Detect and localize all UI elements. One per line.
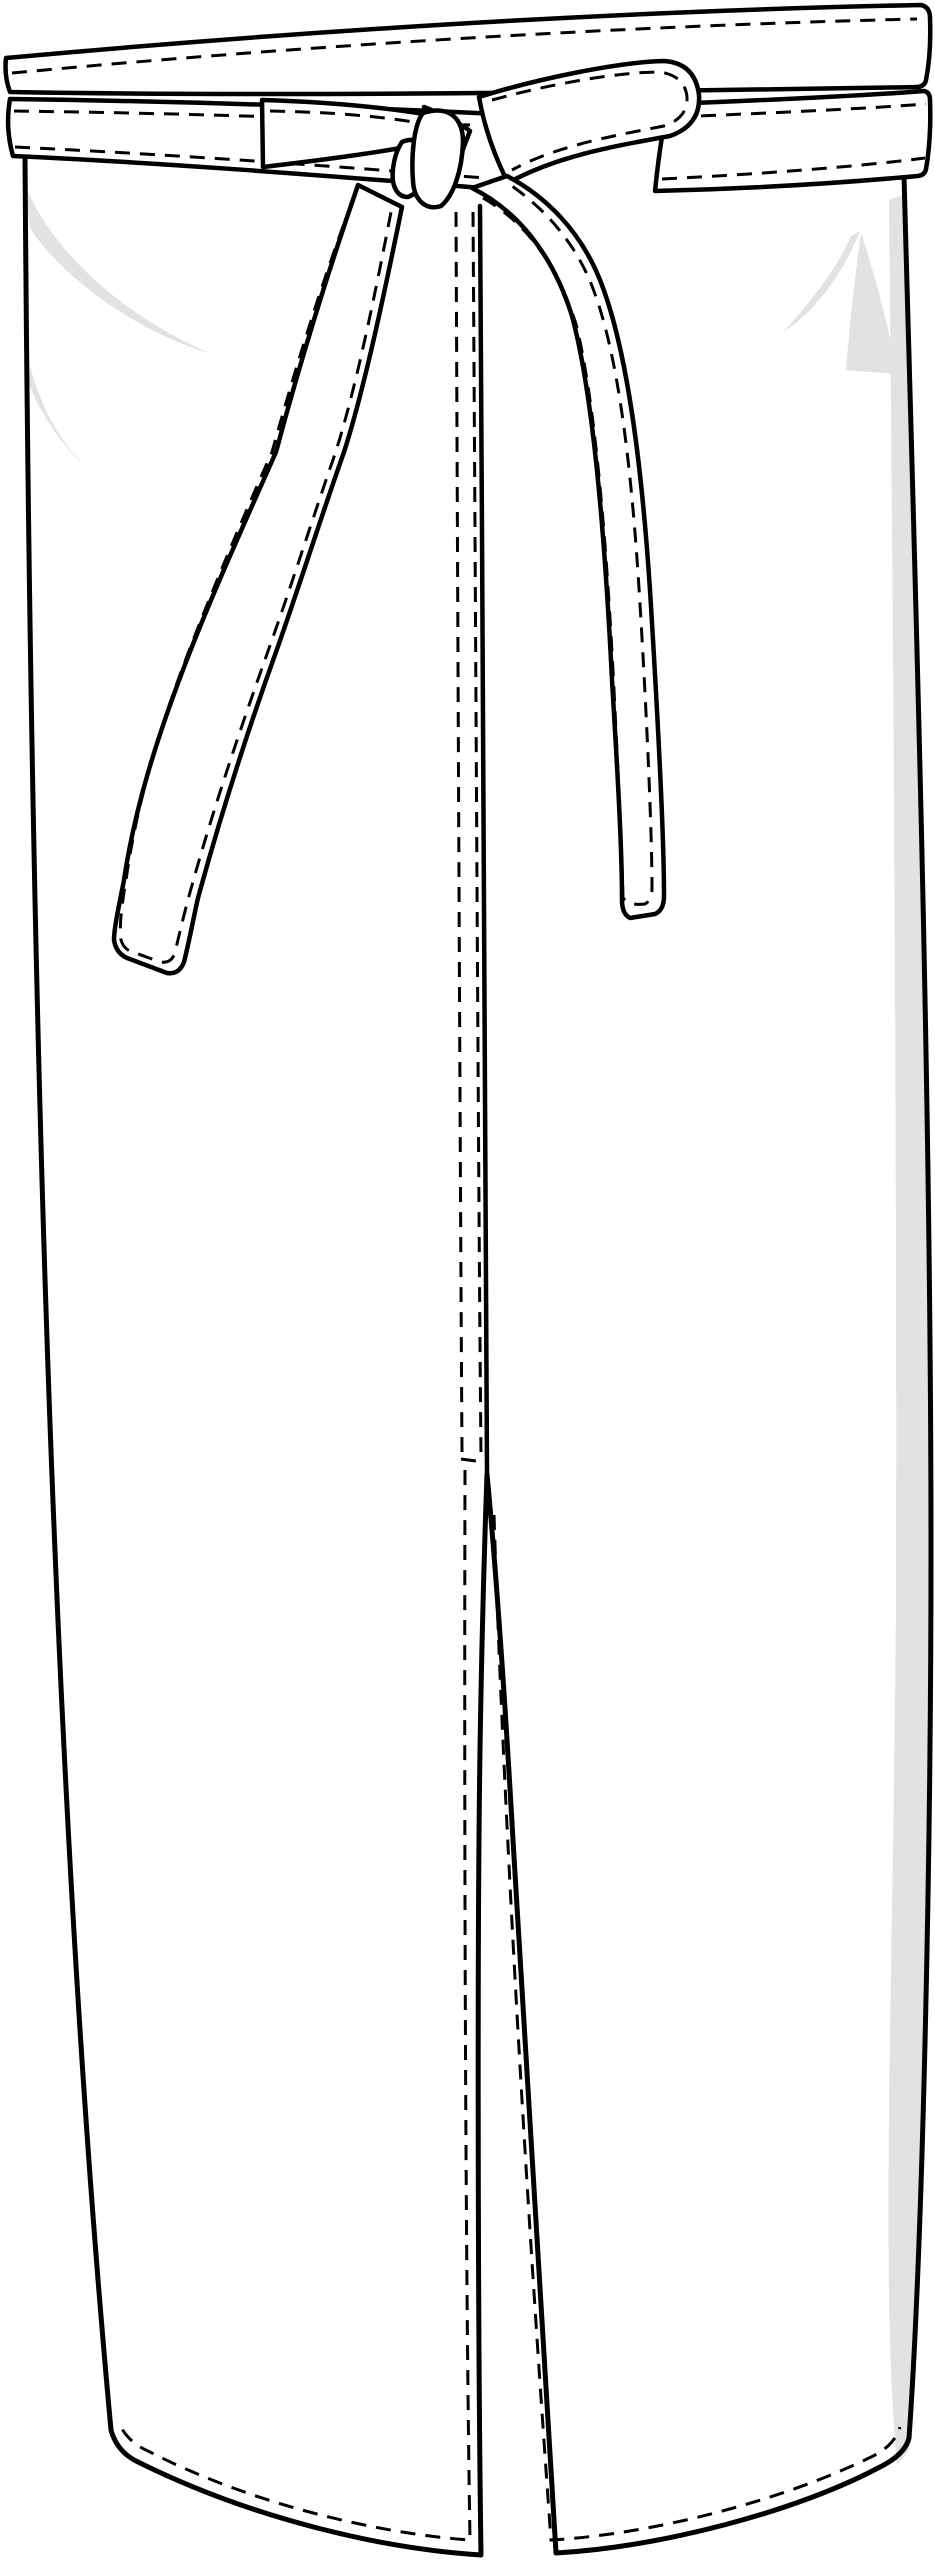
apron-technical-flat: Long bistro wrap apron with waist-tie bo…	[0, 0, 935, 2560]
top-band	[6, 5, 931, 94]
apron-flat-svg: Long bistro wrap apron with waist-tie bo…	[0, 0, 935, 2560]
waistband	[6, 5, 931, 191]
